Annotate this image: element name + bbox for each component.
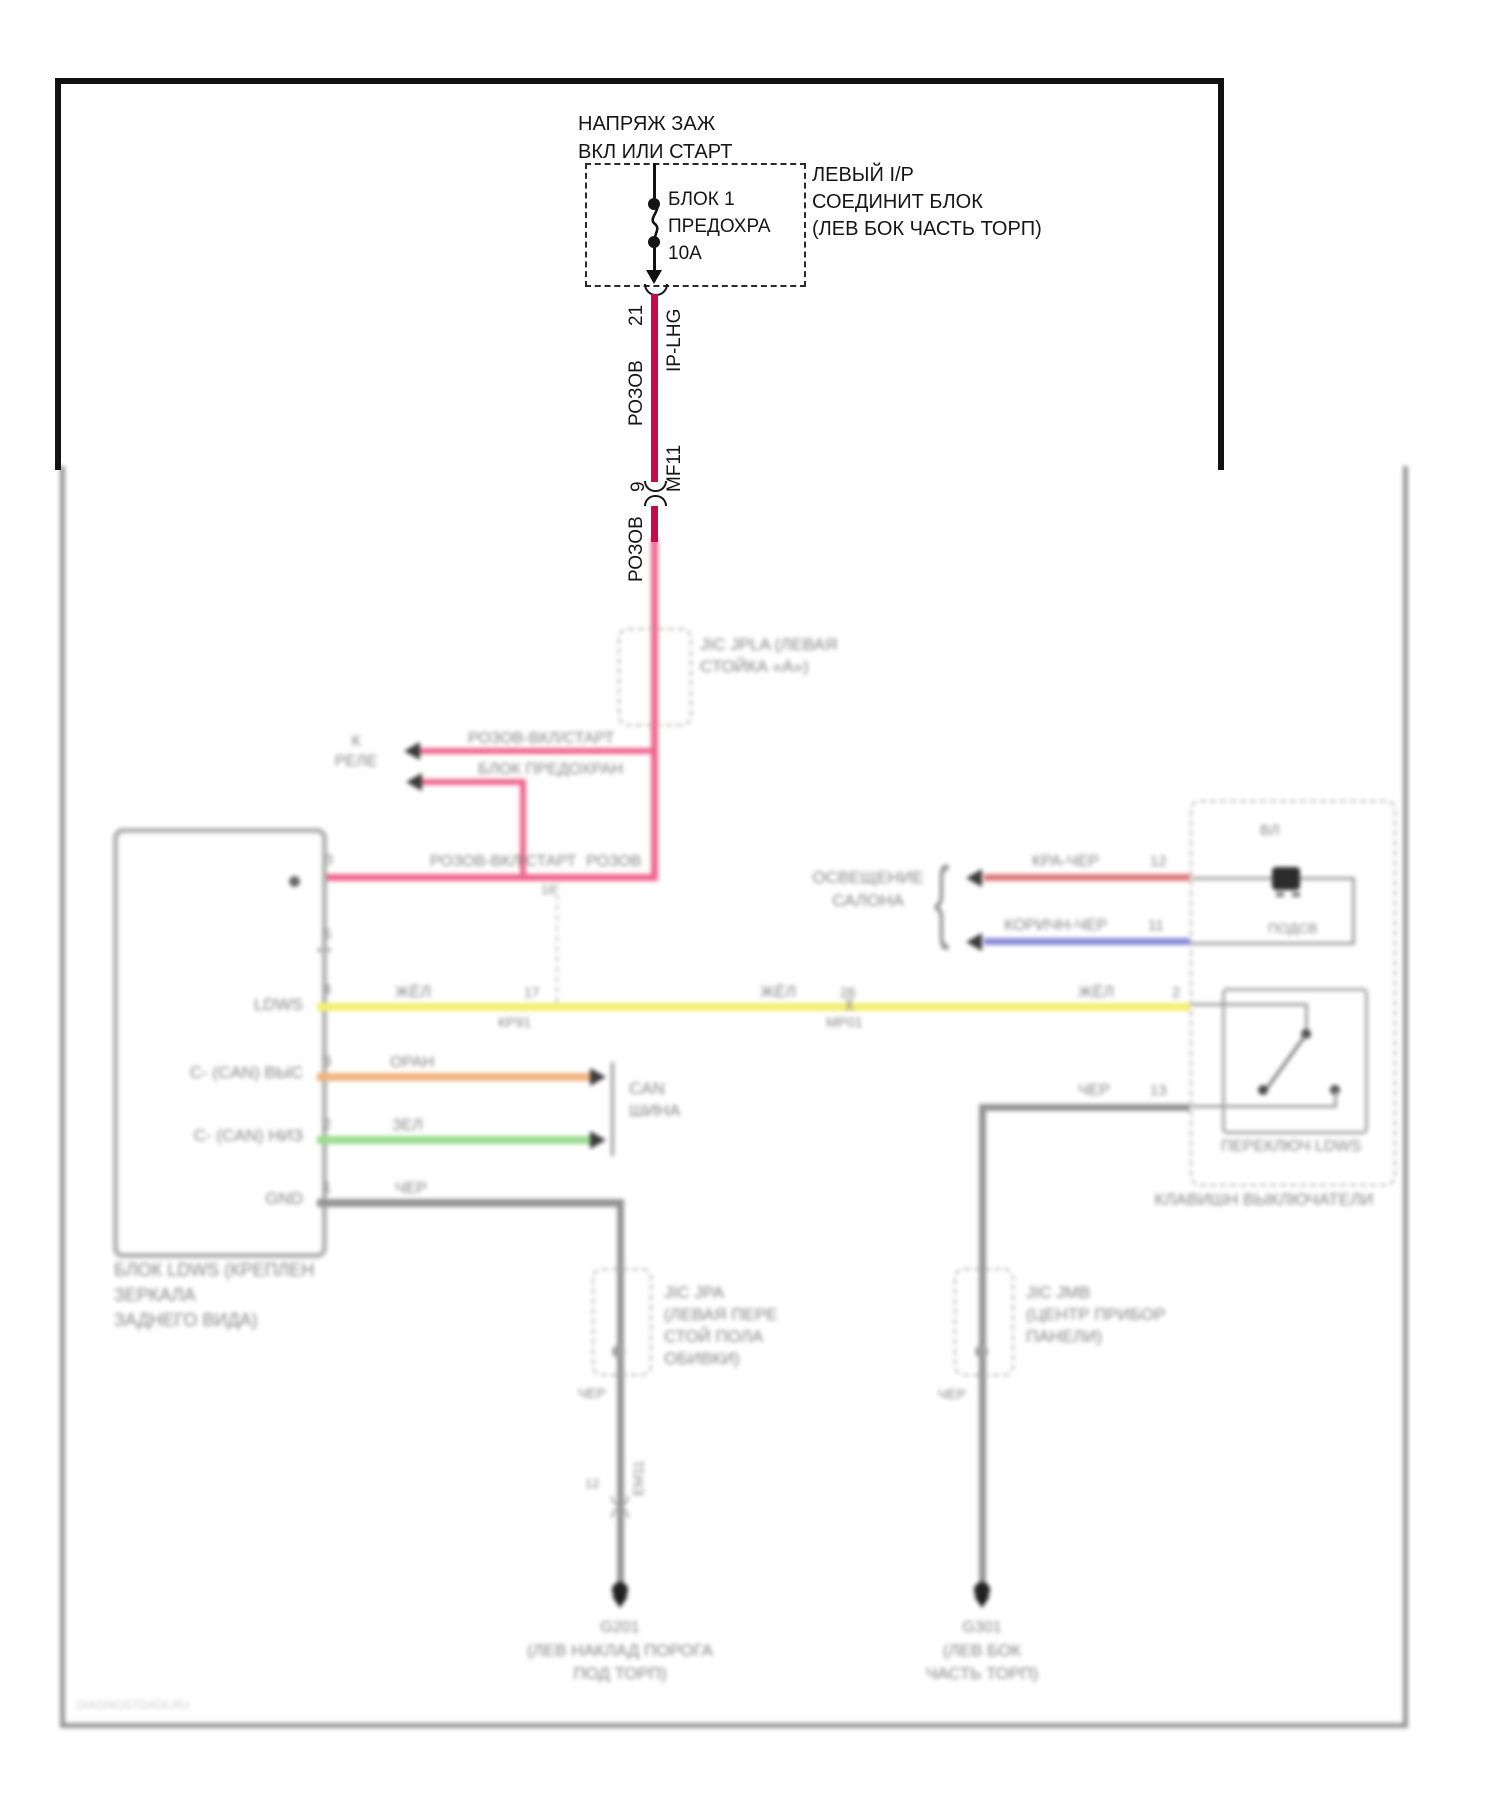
power-source-label: НАПРЯЖ ЗАЖ ВКЛ ИЛИ СТАРТ	[578, 110, 732, 166]
fuse-name: БЛОК 1	[668, 186, 771, 213]
feed-wire-color2: РОЗОВ	[626, 496, 648, 582]
page-border-left	[55, 78, 61, 470]
page-border-top	[55, 78, 1224, 84]
fuse-rating: 10А	[668, 240, 771, 267]
fuse-wire-top	[653, 163, 656, 203]
ip-connector-name: IP-LHG	[664, 290, 686, 372]
feed-wire-color: РОЗОВ	[626, 340, 648, 426]
feed-wire-mid	[651, 506, 658, 542]
ip-block-label: ЛЕВЫЙ I/P СОЕДИНИТ БЛОК (ЛЕВ БОК ЧАСТЬ Т…	[812, 162, 1042, 243]
ip-block-line1: ЛЕВЫЙ I/P	[812, 162, 1042, 189]
fuse-output-arrow-icon	[646, 270, 662, 284]
power-source-line1: НАПРЯЖ ЗАЖ	[578, 110, 732, 138]
mf11-name: MF11	[664, 430, 686, 492]
ip-connector-pin: 21	[626, 294, 648, 326]
fuse-terminal-top-dot	[648, 198, 660, 210]
page-border-right	[1218, 78, 1224, 470]
fuse-desc: ПРЕДОХРА	[668, 213, 771, 240]
wiring-diagram-page: JIC JPLA (ЛЕВАЯ СТОЙКА «А») РОЗОВ-ВКЛ/СТ…	[0, 0, 1500, 1814]
fuse-wire-bottom	[653, 243, 656, 271]
ip-block-line2: СОЕДИНИТ БЛОК	[812, 189, 1042, 216]
ip-block-line3: (ЛЕВ БОК ЧАСТЬ ТОРП)	[812, 216, 1042, 243]
feed-wire-upper	[651, 294, 658, 482]
power-source-line2: ВКЛ ИЛИ СТАРТ	[578, 138, 732, 166]
sharp-top-region: НАПРЯЖ ЗАЖ ВКЛ ИЛИ СТАРТ БЛОК 1 ПРЕДОХРА…	[0, 0, 1500, 1814]
fuse-label: БЛОК 1 ПРЕДОХРА 10А	[668, 186, 771, 267]
